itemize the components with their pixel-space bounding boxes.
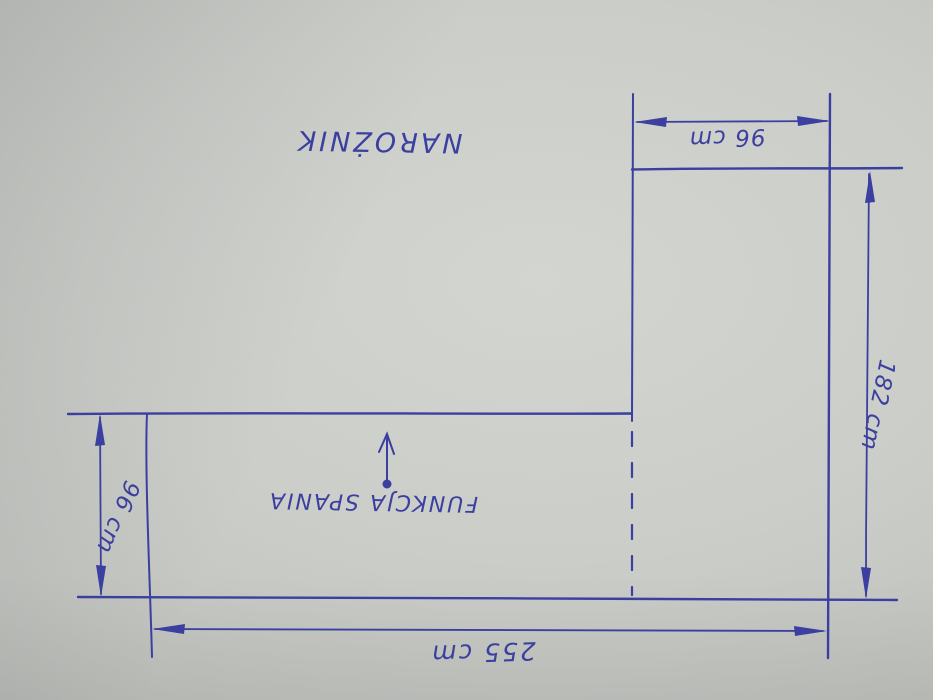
dim-label-left-depth: 96 cm: [91, 477, 145, 558]
dim-label-bottom-length: 255 cm: [430, 636, 537, 669]
labels: NAROŻNIK 96 cm 182 cm 96 cm FUNKCJA SPAN…: [91, 123, 900, 669]
dim-label-top-width: 96 cm: [688, 123, 766, 152]
title-text: NAROŻNIK: [295, 124, 463, 159]
base-bottom-edge: [78, 597, 897, 600]
dim-line-bottom-255: [155, 629, 823, 631]
arrowhead-up-icon: [865, 171, 875, 203]
chaise-right-edge: [828, 94, 830, 658]
sleep-function-label: FUNKCJA SPANIA: [268, 487, 479, 516]
seat-top-edge: [68, 413, 631, 414]
arrowhead-down-icon: [96, 565, 106, 597]
arrowhead-right-icon: [794, 626, 827, 636]
chaise-left-edge-solid: [632, 94, 633, 421]
arrowhead-up-icon: [95, 414, 105, 446]
sofa-plan-sketch: NAROŻNIK 96 cm 182 cm 96 cm FUNKCJA SPAN…: [0, 0, 933, 700]
ink-lines: [68, 94, 902, 658]
arrowhead-left-icon: [152, 624, 185, 634]
arrowhead-down-icon: [861, 567, 871, 599]
sleep-arrow-dot: [383, 480, 392, 489]
arrowheads: [95, 116, 875, 636]
arrowhead-right-icon: [797, 116, 830, 126]
dim-label-right-length: 182 cm: [855, 357, 900, 453]
paper-background: NAROŻNIK 96 cm 182 cm 96 cm FUNKCJA SPAN…: [0, 0, 933, 700]
arrowhead-left-icon: [634, 117, 667, 127]
chaise-top-edge: [632, 168, 902, 170]
seat-left-edge: [146, 414, 152, 657]
